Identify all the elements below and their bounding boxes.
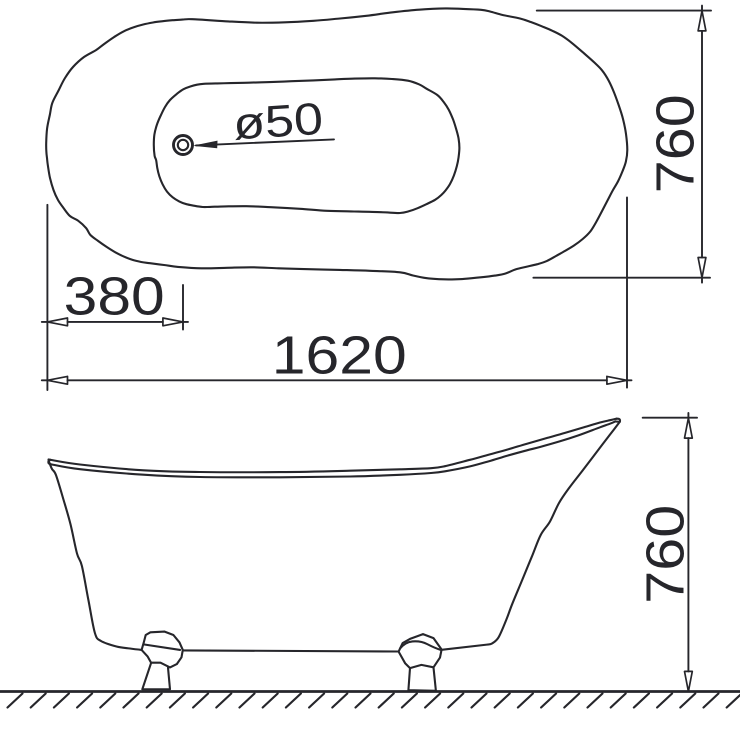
- svg-text:ø50: ø50: [232, 93, 325, 150]
- svg-text:1620: 1620: [272, 327, 407, 386]
- svg-text:760: 760: [637, 505, 696, 604]
- svg-text:760: 760: [647, 94, 706, 193]
- svg-text:380: 380: [64, 268, 165, 327]
